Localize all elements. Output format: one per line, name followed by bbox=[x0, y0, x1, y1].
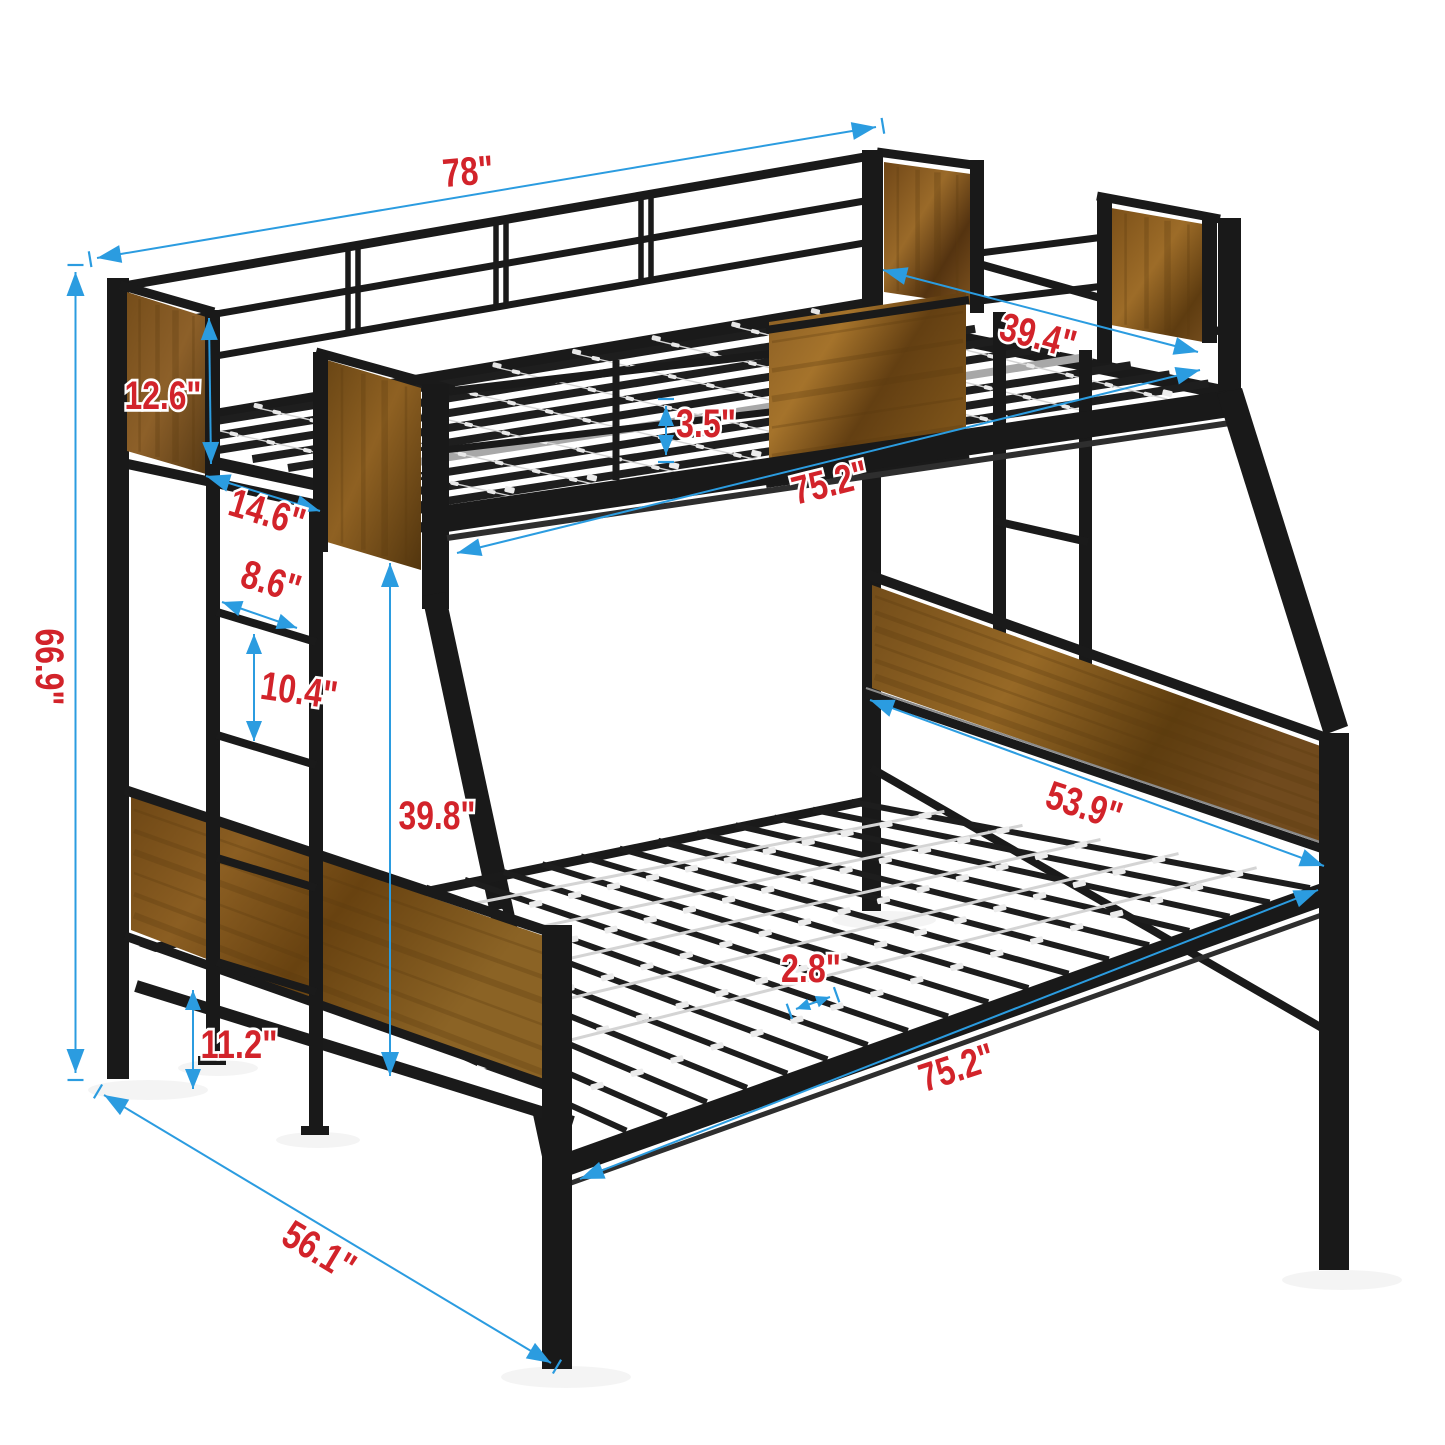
svg-text:2.8": 2.8" bbox=[781, 947, 841, 991]
svg-text:66.9": 66.9" bbox=[27, 629, 71, 706]
svg-text:12.6": 12.6" bbox=[125, 374, 202, 418]
svg-text:78": 78" bbox=[441, 148, 496, 196]
svg-text:11.2": 11.2" bbox=[201, 1023, 278, 1067]
svg-text:39.8": 39.8" bbox=[399, 794, 476, 838]
svg-text:3.5": 3.5" bbox=[676, 402, 736, 446]
